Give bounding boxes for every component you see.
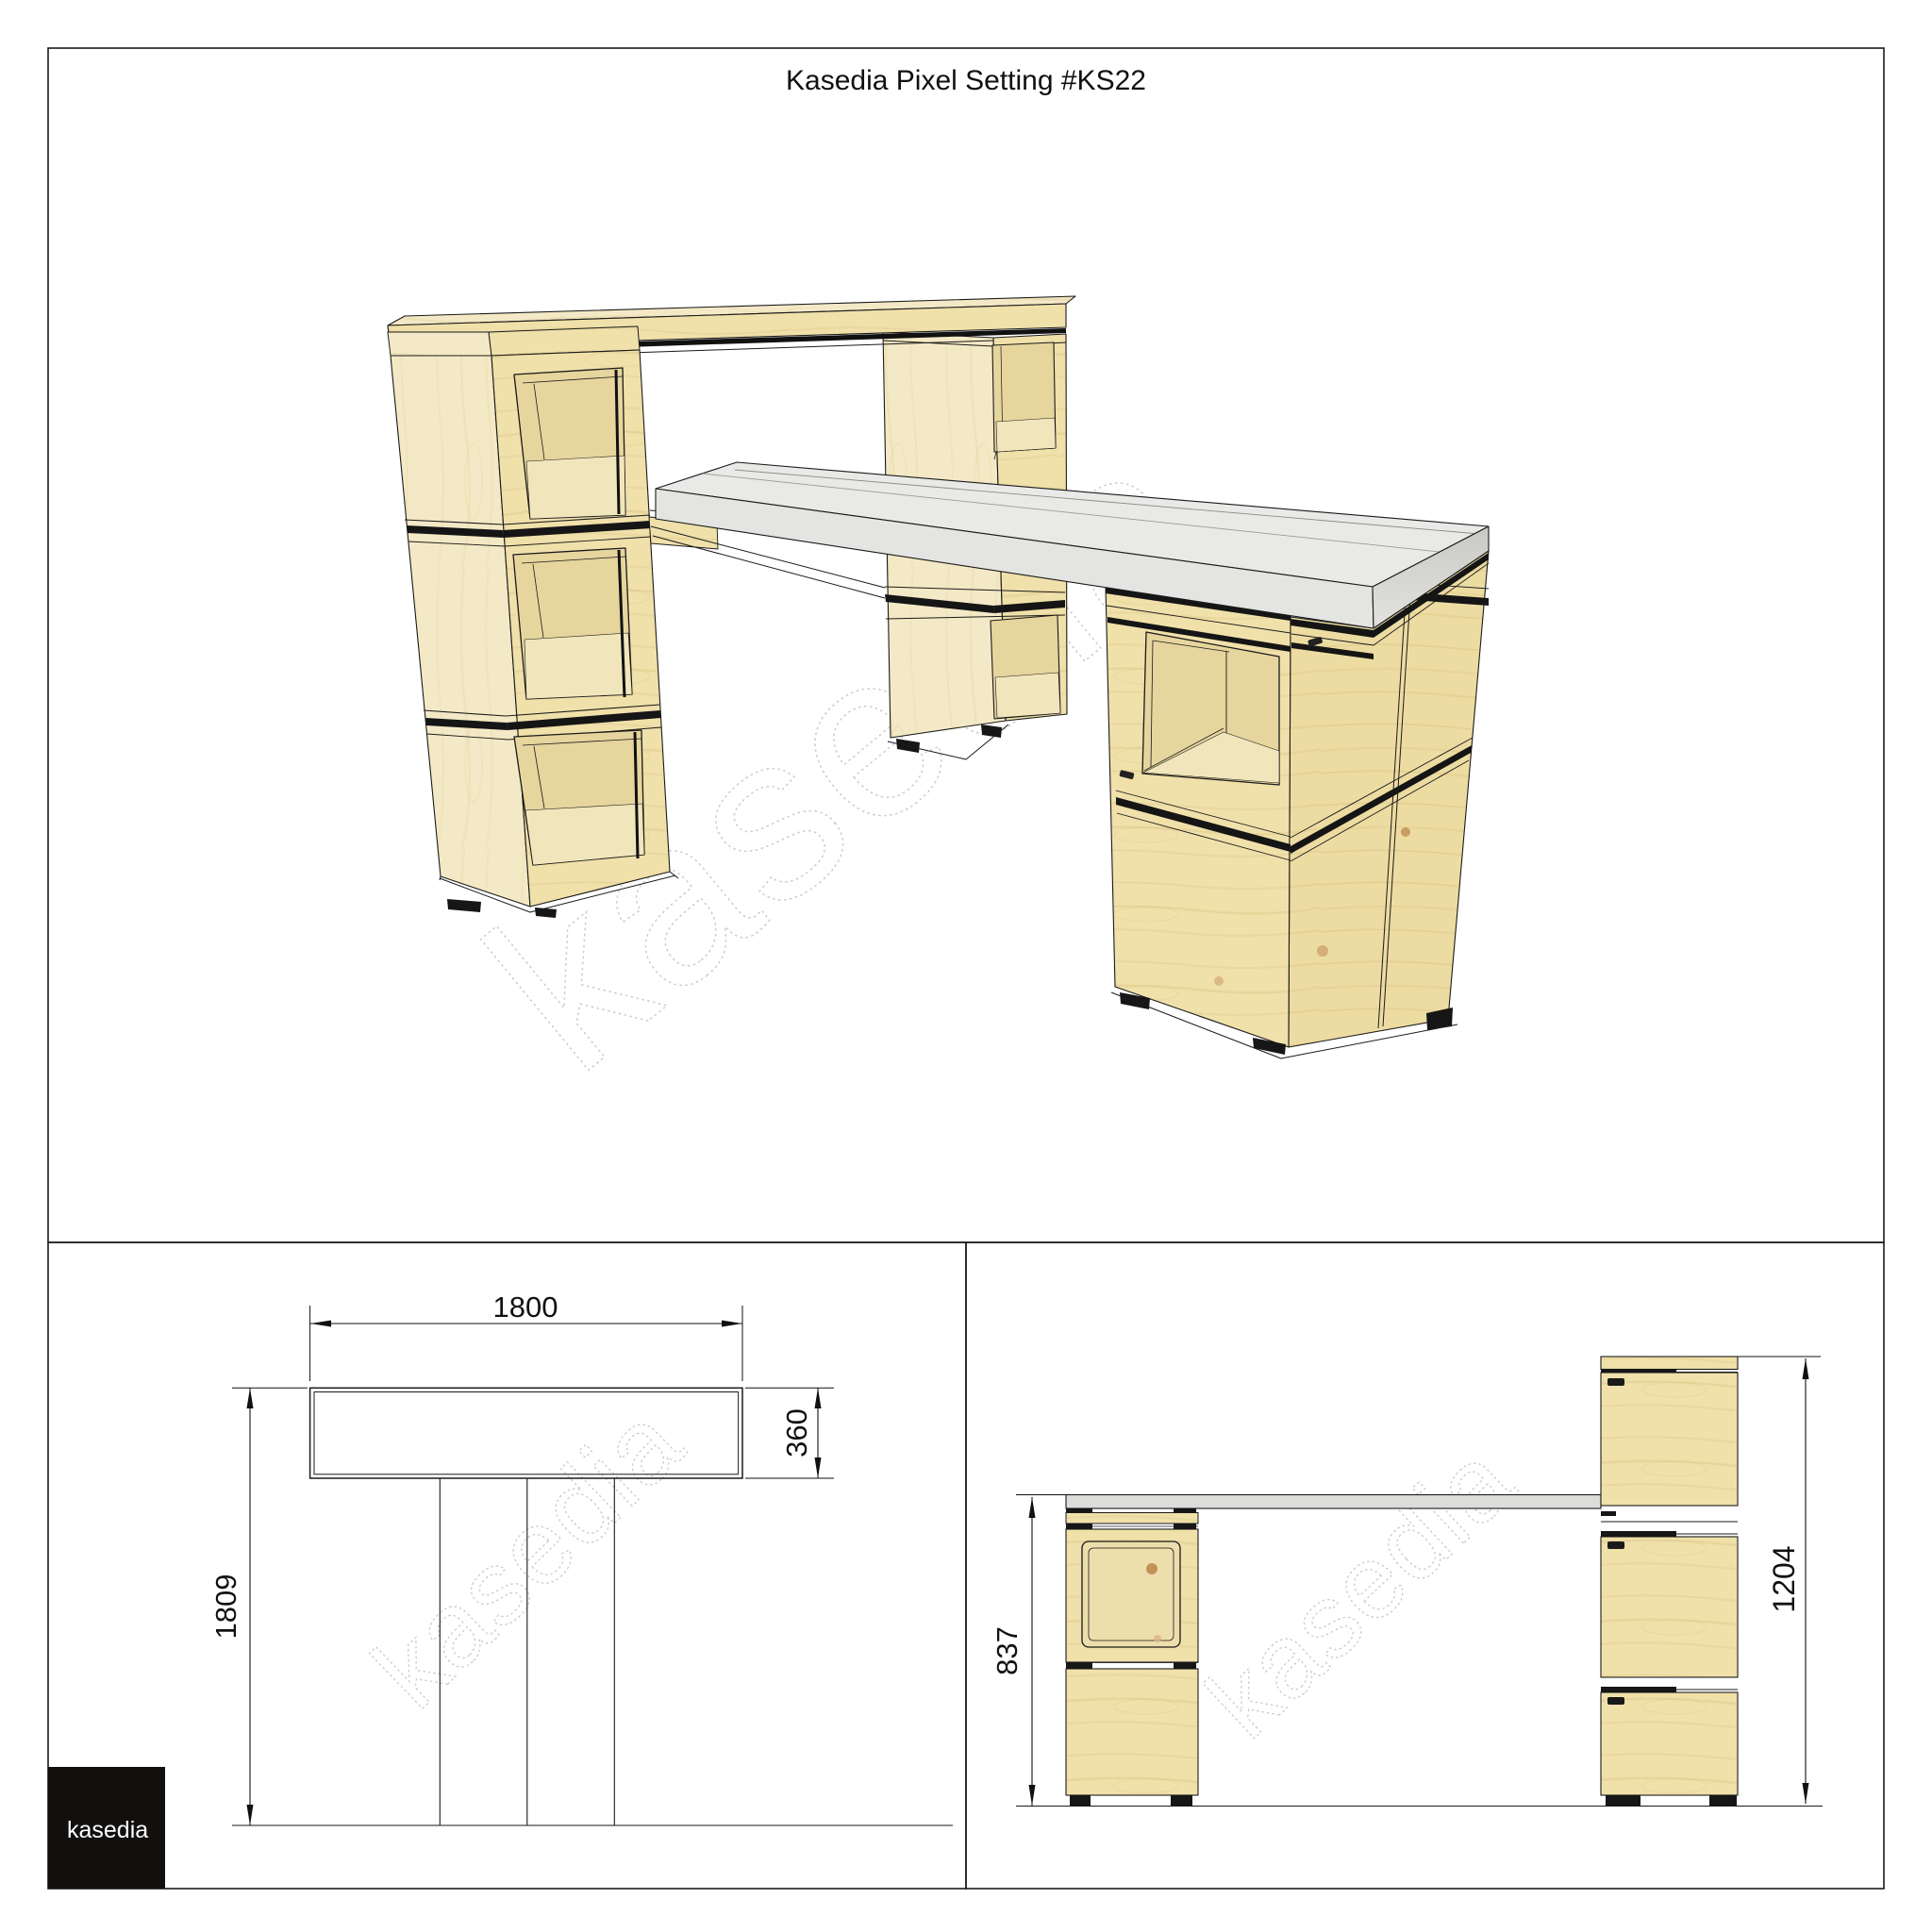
svg-text:360: 360 [780, 1408, 813, 1457]
svg-text:kasedia: kasedia [67, 1817, 148, 1843]
svg-text:Kasedia Pixel Setting #KS22: Kasedia Pixel Setting #KS22 [786, 65, 1146, 96]
svg-text:1809: 1809 [209, 1574, 242, 1640]
svg-text:1800: 1800 [493, 1291, 558, 1324]
svg-text:837: 837 [991, 1626, 1024, 1675]
svg-text:1204: 1204 [1767, 1545, 1801, 1612]
